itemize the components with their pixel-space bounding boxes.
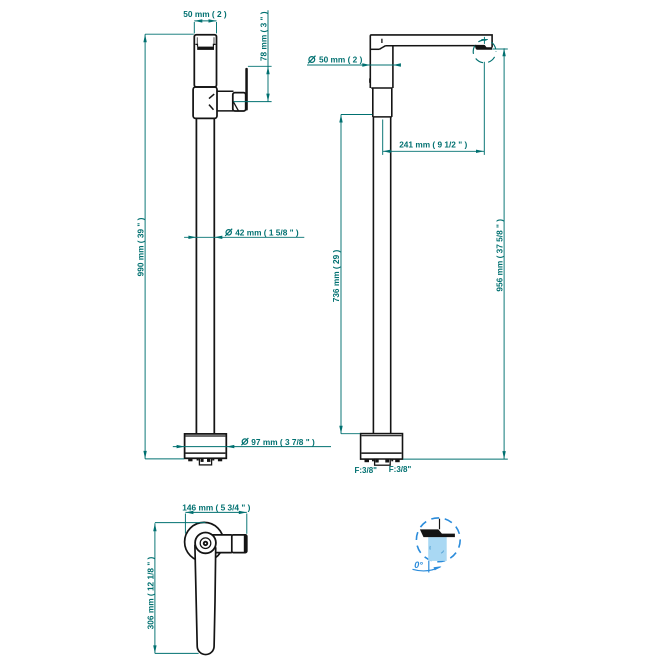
svg-text:736 mm ( 29 ): 736 mm ( 29 ) <box>331 249 341 302</box>
svg-text:97 mm ( 3 7/8 " ): 97 mm ( 3 7/8 " ) <box>251 437 315 447</box>
svg-text:990 mm ( 39 " ): 990 mm ( 39 " ) <box>136 217 146 276</box>
svg-text:50 mm ( 2 ): 50 mm ( 2 ) <box>183 9 227 19</box>
svg-text:956 mm ( 37 5/8 " ): 956 mm ( 37 5/8 " ) <box>494 219 504 292</box>
svg-text:50 mm ( 2 ): 50 mm ( 2 ) <box>319 55 363 65</box>
svg-text:241 mm ( 9 1/2 " ): 241 mm ( 9 1/2 " ) <box>399 140 467 150</box>
svg-text:0°: 0° <box>414 560 423 570</box>
svg-text:78 mm ( 3 " ): 78 mm ( 3 " ) <box>259 11 269 61</box>
svg-text:146 mm ( 5 3/4 " ): 146 mm ( 5 3/4 " ) <box>182 502 250 512</box>
svg-text:F:3/8": F:3/8" <box>389 465 412 474</box>
svg-text:42 mm ( 1 5/8 " ): 42 mm ( 1 5/8 " ) <box>235 227 299 237</box>
svg-text:306 mm ( 12 1/8 " ): 306 mm ( 12 1/8 " ) <box>146 556 156 629</box>
svg-text:F:3/8": F:3/8" <box>355 466 378 475</box>
